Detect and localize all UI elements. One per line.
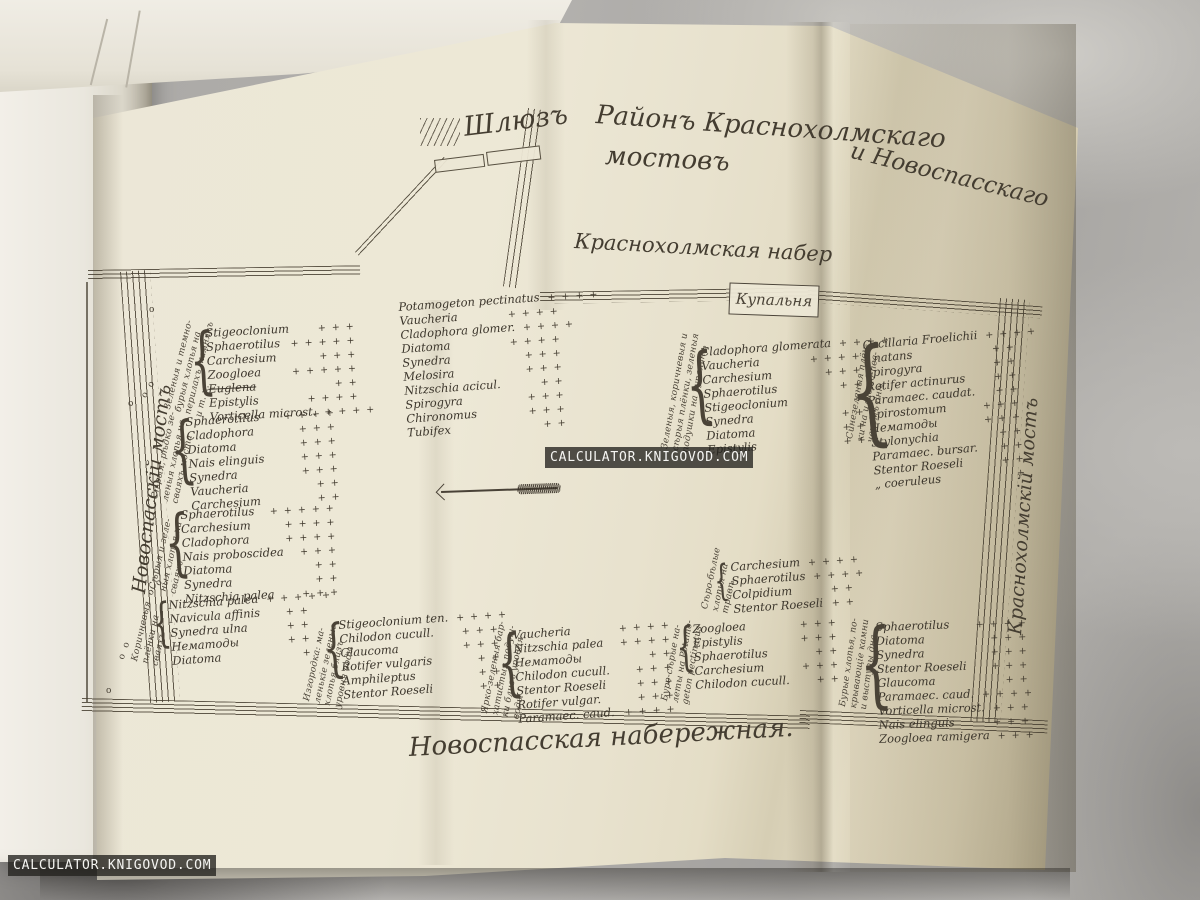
abundance-marks: + +	[307, 573, 339, 586]
species-group-grass-flakes: {Carchesium+ + + +Sphaerotilus+ + + +Col…	[730, 551, 856, 615]
species-group-potamogeton-deposits: {Zoogloea+ + +Epistylis+ + +Sphaerotilus…	[692, 614, 840, 691]
book-photo: Шлюзъ Районъ Краснохолмскаго и Новоспасс…	[0, 0, 1200, 900]
watermark-center: CALCULATOR.KNIGOVOD.COM	[545, 447, 753, 468]
species-group-grey-flakes-piles: {Sphaerotilus+ + + +Cladophora+ + +Diato…	[185, 405, 341, 513]
abundance-marks: + + +	[792, 617, 838, 630]
species-name: Diatoma	[172, 650, 222, 667]
abundance-marks: + + + +	[515, 319, 575, 334]
species-group-sluice-channel: Potamogeton pectinatus+ + + +Vaucheria+ …	[398, 289, 567, 440]
sounding-marks: о	[106, 686, 113, 696]
abundance-marks: +	[1008, 467, 1026, 479]
abundance-marks: + + +	[983, 646, 1029, 659]
sounding-marks: о	[128, 399, 135, 409]
abundance-marks: + +	[277, 605, 309, 618]
abundance-marks: + +	[278, 619, 310, 632]
abundance-marks: + + + +	[974, 688, 1034, 701]
species-name: Zoogloea ramigera	[879, 728, 990, 746]
sounding-marks: о о	[140, 378, 159, 400]
abundance-marks: + +	[823, 596, 855, 609]
abundance-marks: + + +	[983, 660, 1029, 673]
abundance-marks: + +	[808, 673, 840, 686]
abundance-marks: + + +	[292, 545, 338, 558]
abundance-marks: + +	[532, 376, 564, 389]
abundance-marks: + +	[807, 645, 839, 658]
abundance-marks: + + +	[985, 716, 1031, 729]
abundance-marks: + + +	[990, 729, 1036, 742]
abundance-marks: +	[294, 647, 312, 659]
abundance-marks: + +	[306, 559, 338, 572]
abundance-marks: + +	[308, 477, 340, 490]
species-group-stones-bottom: {Sphaerotilus+ + + +Diatoma+ + +Synedra+…	[875, 615, 1031, 746]
species-group-bathhouse-cushions: {Cladophora glomerata+ + + +Vaucheria+ +…	[700, 334, 867, 457]
abundance-marks: + +	[326, 377, 358, 390]
abundance-marks: + +	[998, 674, 1030, 686]
abundance-marks: + + + +	[968, 618, 1028, 631]
abundance-marks: + + + +	[539, 289, 599, 304]
abundance-marks: + +	[535, 418, 567, 431]
species-name: Tubifex	[407, 423, 452, 440]
abundance-marks: + + +	[311, 349, 357, 362]
species-group-brown-films-piles: {Nitzschia palea+ + + + +Navicula affini…	[168, 588, 313, 668]
watermark-bottom-left: CALCULATOR.KNIGOVOD.COM	[8, 855, 216, 876]
abundance-marks: + + +	[985, 702, 1031, 715]
species-group-fence-waterline: {Stigeoclonium ten.+ + + +Chilodon cucul…	[338, 607, 503, 702]
abundance-marks: + + + +	[805, 568, 865, 583]
abundance-marks: + + + +	[616, 704, 676, 719]
abundance-marks: + +	[279, 633, 311, 646]
sounding-marks: о	[149, 305, 156, 315]
abundance-marks: + +	[822, 582, 854, 595]
abundance-marks: + + +	[982, 632, 1028, 645]
habitat-note-brown-films-piles: Коричневыя плёнки на сваяхъ	[130, 600, 175, 667]
